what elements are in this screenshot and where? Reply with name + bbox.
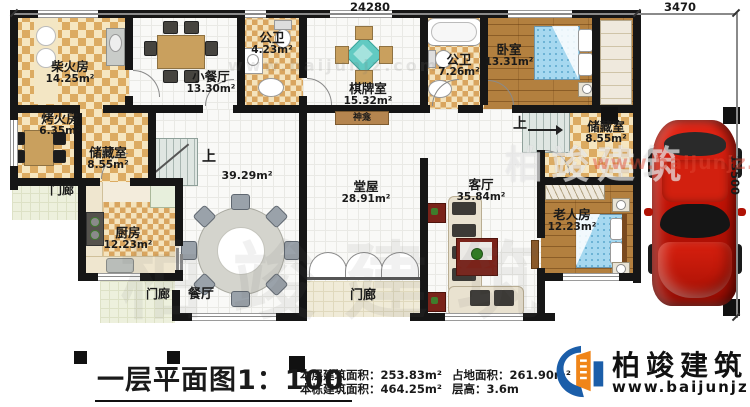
wall xyxy=(592,10,600,105)
brand-url: www.baijunjz.com xyxy=(612,378,750,396)
dimension-top: 24280 xyxy=(330,0,410,14)
stairs-up-label-left: 上 xyxy=(197,150,221,165)
floor-plan-canvas: 神龛 24280 3470 13500 柏竣建筑 www.baijunjz.co… xyxy=(0,0,750,407)
area-stats-left: 本层建筑面积：253.83m² 本栋建筑面积：464.25m² xyxy=(300,368,442,396)
room-label-bath1: 公卫4.23m² xyxy=(237,31,307,56)
room-label-storage-left: 储藏室8.55m² xyxy=(73,146,143,171)
dimension-right: 13500 xyxy=(728,152,742,198)
chair xyxy=(355,26,373,40)
chair xyxy=(163,21,178,34)
stove-pot xyxy=(36,26,56,46)
wall xyxy=(125,10,133,70)
car-hood xyxy=(658,242,732,298)
wall xyxy=(299,113,307,321)
plant xyxy=(431,208,438,215)
chair xyxy=(284,241,300,260)
chair xyxy=(181,241,197,260)
chair xyxy=(184,21,199,34)
room-label-chess: 棋牌室15.32m² xyxy=(333,82,403,107)
wall xyxy=(103,105,203,113)
bathtub-inner xyxy=(431,22,477,42)
room-label-small-dining: 小餐厅13.30m² xyxy=(176,70,246,95)
room-label-elderly: 老人房12.23m² xyxy=(537,208,607,233)
sofa-cushion xyxy=(470,290,490,306)
logo-svg xyxy=(552,342,610,400)
plant xyxy=(431,297,438,304)
shrine: 神龛 xyxy=(335,111,389,125)
small-dining-table xyxy=(157,35,205,69)
sofa-cushion xyxy=(452,202,476,215)
room-label-living: 客厅35.84m² xyxy=(446,178,516,203)
kitchen-sink xyxy=(106,258,134,273)
window xyxy=(445,313,523,321)
floor-area: 本层建筑面积：253.83m² xyxy=(300,368,442,382)
car-mirror xyxy=(644,208,653,216)
lamp xyxy=(582,84,592,94)
wall xyxy=(175,270,183,281)
wall xyxy=(420,158,428,321)
sofa-cushion xyxy=(494,290,514,306)
stairs-right-arrowhead xyxy=(556,125,563,135)
open-area-label: 39.29m² xyxy=(212,170,282,182)
pillow xyxy=(578,29,593,52)
wall xyxy=(148,113,156,186)
sink-basin xyxy=(109,34,122,52)
headboard xyxy=(622,214,627,266)
bed-sheet-fold xyxy=(552,26,578,78)
sliding-door xyxy=(176,248,179,270)
car-roof xyxy=(662,160,728,202)
car-windshield xyxy=(660,204,730,238)
chair xyxy=(335,46,349,64)
porch-label-2: 门廊 xyxy=(123,288,193,301)
wall xyxy=(125,96,133,113)
stairs-up-label-right: 上 xyxy=(508,117,532,132)
shrine-label: 神龛 xyxy=(353,113,371,123)
chair xyxy=(53,150,66,163)
window xyxy=(10,120,18,166)
window xyxy=(98,273,140,281)
wall xyxy=(537,177,641,185)
washbasin xyxy=(258,78,284,97)
window xyxy=(563,273,619,281)
sofa-cushion xyxy=(452,224,476,237)
porch-label-3: 门廊 xyxy=(328,289,398,303)
fridge xyxy=(150,184,176,208)
room-label-fire-room: 烤火房6.35m² xyxy=(25,112,95,137)
wall xyxy=(299,96,307,105)
room-label-main-hall: 堂屋28.91m² xyxy=(331,180,401,205)
plant xyxy=(471,248,483,260)
room-label-kitchen: 厨房12.23m² xyxy=(93,226,163,251)
pillow xyxy=(578,53,593,76)
window xyxy=(192,313,276,321)
lamp xyxy=(616,200,626,210)
wall xyxy=(633,10,641,283)
dimension-top-right: 3470 xyxy=(650,0,710,14)
footer-square xyxy=(74,351,87,364)
chair xyxy=(231,194,250,210)
wall xyxy=(175,178,183,246)
wardrobe xyxy=(545,184,605,200)
round-table-center xyxy=(217,227,265,275)
brand-logo-icon xyxy=(552,342,610,400)
wall xyxy=(512,105,641,113)
chair xyxy=(379,46,393,64)
porch-label-1: 门廊 xyxy=(27,184,97,197)
chair xyxy=(144,41,157,56)
room-label-storage-right: 储藏室8.55m² xyxy=(571,120,641,145)
building-area: 本栋建筑面积：464.25m² xyxy=(300,382,442,396)
entry-door-sill xyxy=(307,277,421,280)
car-mirror xyxy=(737,208,746,216)
wardrobe xyxy=(600,20,632,105)
room-label-firewood: 柴火房14.25m² xyxy=(35,60,105,85)
chair xyxy=(205,41,218,56)
car-rear-window xyxy=(664,132,726,156)
door-leaf xyxy=(531,240,539,269)
wall xyxy=(458,105,483,113)
stairs-right-arrow xyxy=(528,129,556,131)
room-label-bedroom: 卧室13.31m² xyxy=(474,43,544,68)
